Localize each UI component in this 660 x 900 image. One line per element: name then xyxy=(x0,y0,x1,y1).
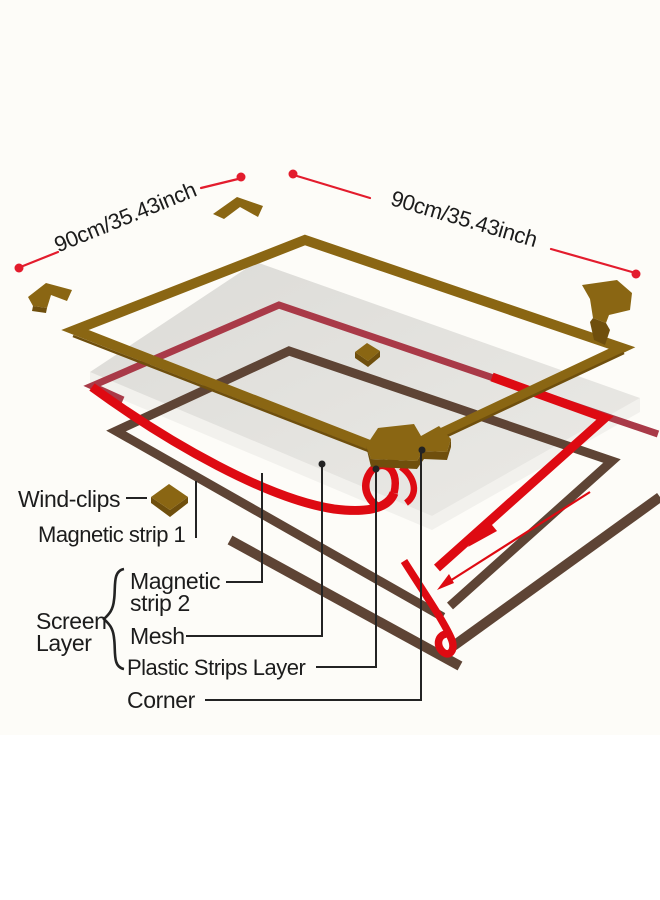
screen-layer-brace xyxy=(104,569,124,669)
label-magnetic-strip-1: Magnetic strip 1 xyxy=(38,522,186,547)
dimension-left-segment-2 xyxy=(201,179,238,188)
callout-corner-dot xyxy=(419,447,426,454)
dimension-right: 90cm/35.43inch xyxy=(289,170,641,279)
background-band xyxy=(0,735,660,900)
dimension-right-segment-1 xyxy=(297,176,370,198)
label-wind-clips: Wind-clips xyxy=(18,486,120,512)
product-diagram: Wind-clips Magnetic strip 1 Magnetic str… xyxy=(0,0,660,900)
red-pointer-arrowhead xyxy=(437,574,454,590)
dimension-left-segment-1 xyxy=(23,252,58,266)
dimension-right-dot-start xyxy=(289,170,298,179)
corner-bracket-right xyxy=(582,280,632,323)
dimension-right-dot-end xyxy=(632,270,641,279)
label-mesh: Mesh xyxy=(130,623,185,649)
dimension-left-dot-start xyxy=(15,264,24,273)
dimension-left-label: 90cm/35.43inch xyxy=(50,177,199,257)
label-screen-layer-line2: Layer xyxy=(36,630,92,656)
label-magnetic-strip-2-line2: strip 2 xyxy=(130,590,190,616)
dimension-right-segment-2 xyxy=(551,249,632,272)
callout-mesh-dot xyxy=(319,461,326,468)
label-plastic-strips-layer: Plastic Strips Layer xyxy=(127,655,305,680)
label-corner: Corner xyxy=(127,687,196,713)
dimension-left-dot-end xyxy=(237,173,246,182)
corner-bracket-left xyxy=(28,283,72,308)
product-diagram-page: Wind-clips Magnetic strip 1 Magnetic str… xyxy=(0,0,660,900)
dimension-right-label: 90cm/35.43inch xyxy=(388,186,540,252)
dimension-left: 90cm/35.43inch xyxy=(15,173,246,273)
callout-plastic-strips-dot xyxy=(373,466,380,473)
corner-bracket-top xyxy=(213,197,263,219)
